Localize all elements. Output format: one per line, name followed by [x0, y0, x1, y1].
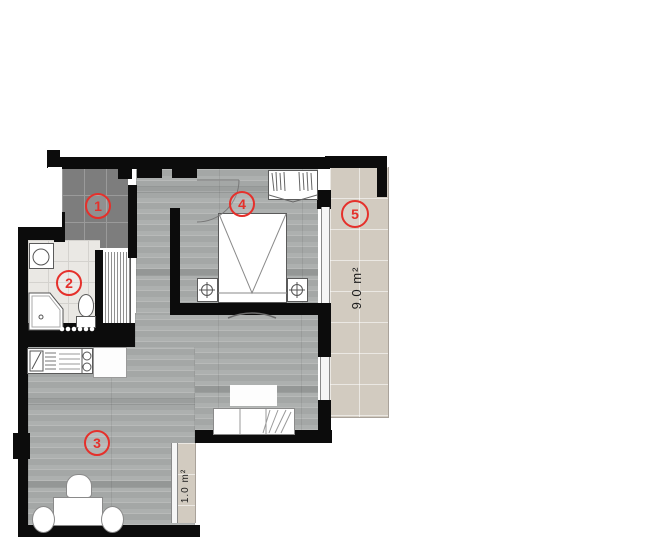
wardrobe [268, 170, 318, 200]
balcony-large-area-label: 9.0 m² [349, 248, 365, 328]
wall-tab-bedroom-door [172, 168, 197, 178]
window-living-balcony [320, 357, 330, 400]
room-number-5: 5 [351, 206, 359, 222]
room-label-living: 3 [84, 430, 110, 456]
room-label-balcony: 5 [341, 200, 369, 228]
wall-east-mid [318, 305, 331, 357]
wall-tab-entry [118, 168, 132, 179]
coffee-table [230, 385, 277, 406]
toilet-bowl [78, 294, 94, 317]
bed [218, 213, 287, 303]
room-number-1: 1 [94, 198, 102, 214]
window-bedroom-balcony [321, 207, 330, 303]
wall-balcony-right [377, 156, 387, 197]
balcony-small-area-label: 1.0 m² [180, 456, 192, 516]
window-small-balcony [171, 443, 178, 523]
room-label-bedroom: 4 [229, 191, 255, 217]
kitchen-counter [27, 348, 93, 374]
toilet-tank [76, 316, 96, 328]
room-label-bathroom: 2 [56, 270, 82, 296]
wall-bedroom-south [170, 303, 331, 315]
chair-top [66, 474, 92, 498]
washing-machine [29, 243, 54, 269]
floor-plan: 1 2 3 4 5 9.0 m² 1.0 m² [0, 0, 650, 551]
room-number-2: 2 [65, 275, 73, 291]
radiator [13, 433, 30, 459]
nightstand-right [287, 278, 308, 302]
entry-door-opening [48, 167, 62, 227]
fridge [93, 347, 127, 378]
sofa [213, 408, 295, 435]
chair-left [32, 506, 55, 533]
wall-top-left-stub [47, 150, 60, 168]
wall-entry-right [128, 185, 137, 258]
dining-table [53, 497, 103, 526]
room-number-3: 3 [93, 435, 101, 451]
wall-tab-hall [137, 168, 162, 178]
nightstand-left [197, 278, 218, 302]
room-number-4: 4 [238, 196, 246, 212]
room-label-entrance: 1 [85, 193, 111, 219]
chair-right [101, 506, 124, 533]
wall-bedroom-west [170, 208, 180, 308]
